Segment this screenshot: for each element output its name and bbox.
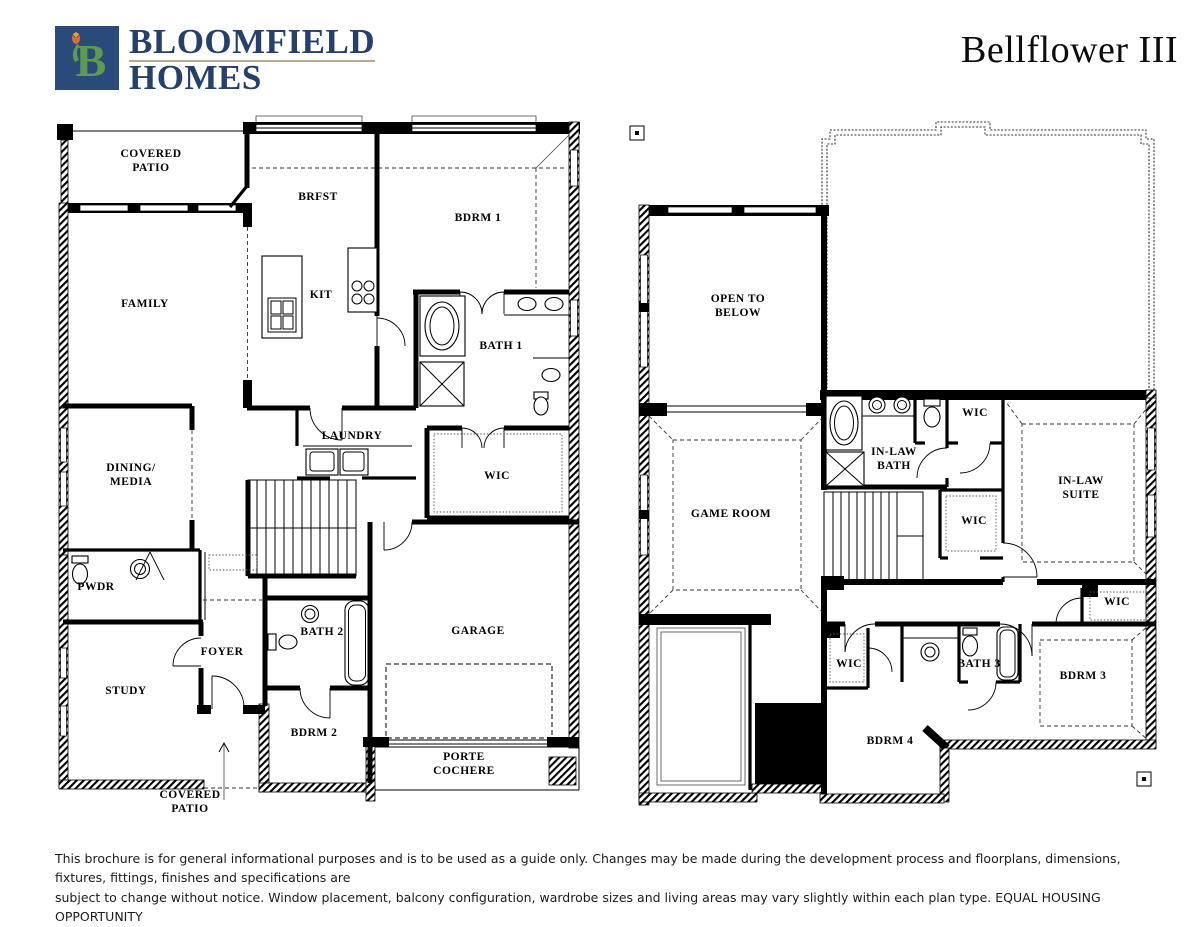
- plan-marker-icon: [630, 126, 644, 140]
- sink-icon: [302, 606, 319, 623]
- toilet-icon: [924, 399, 940, 427]
- brochure-page: B BLOOMFIELD HOMES Bellflower III: [0, 0, 1200, 927]
- stairs-second-floor: [824, 492, 923, 580]
- room-label-porte-cochere: PORTE COCHERE: [433, 751, 495, 779]
- room-label-kit: KIT: [310, 289, 333, 303]
- room-label-study: STUDY: [105, 685, 146, 699]
- room-label-bath2: BATH 2: [300, 626, 343, 640]
- room-label-inlaw-bath: IN-LAW BATH: [871, 446, 917, 474]
- plan-marker-icon: [1137, 772, 1151, 786]
- washer-dryer-icon: [303, 446, 412, 475]
- floorplan-drawing: [0, 0, 1200, 927]
- room-label-pwdr: PWDR: [77, 581, 114, 595]
- room-label-game-room: GAME ROOM: [691, 508, 771, 522]
- room-label-bdrm3: BDRM 3: [1060, 670, 1107, 684]
- disclaimer-line2: subject to change without notice. Window…: [55, 888, 1160, 927]
- room-label-bdrm1: BDRM 1: [455, 212, 502, 226]
- bathtub-icon: [345, 601, 369, 685]
- kitchen-island-icon: [262, 256, 302, 338]
- room-label-inlaw-suite: IN-LAW SUITE: [1058, 475, 1104, 503]
- room-label-bath1: BATH 1: [479, 340, 522, 354]
- disclaimer: This brochure is for general information…: [55, 849, 1160, 927]
- sink-icon: [131, 560, 150, 579]
- room-label-laundry: LAUNDRY: [322, 430, 383, 444]
- bathtub-icon: [997, 627, 1018, 680]
- room-label-wic-4: WIC: [836, 658, 862, 672]
- disclaimer-line1: This brochure is for general information…: [55, 849, 1160, 888]
- room-label-wic-3: WIC: [1104, 596, 1130, 610]
- bathtub-icon: [420, 296, 465, 356]
- toilet-icon: [534, 392, 548, 415]
- room-label-dining-media: DINING/ MEDIA: [106, 462, 156, 490]
- toilet-icon: [72, 556, 88, 584]
- room-label-wic-2: WIC: [961, 515, 987, 529]
- bathtub-icon: [826, 396, 862, 450]
- room-label-bdrm2: BDRM 2: [291, 727, 338, 741]
- room-label-bdrm4: BDRM 4: [867, 735, 914, 749]
- room-label-family: FAMILY: [121, 298, 169, 312]
- shower-icon: [420, 362, 464, 406]
- room-label-covered-patio-rear: COVERED PATIO: [159, 789, 220, 817]
- room-label-covered-patio: COVERED PATIO: [120, 148, 181, 176]
- room-label-foyer: FOYER: [201, 646, 244, 660]
- sink-icon: [533, 358, 569, 382]
- room-label-brfst: BRFST: [298, 191, 338, 205]
- room-label-bath3: BATH 3: [957, 658, 1000, 672]
- room-label-garage: GARAGE: [451, 625, 504, 639]
- room-label-wic: WIC: [484, 470, 510, 484]
- stairs-first-floor: [248, 480, 356, 576]
- cooktop-icon: [348, 248, 377, 312]
- room-label-open-to-below: OPEN TO BELOW: [711, 293, 766, 321]
- room-label-wic-1: WIC: [962, 407, 988, 421]
- toilet-icon: [963, 628, 978, 656]
- toilet-icon: [268, 634, 297, 650]
- shower-icon: [826, 452, 864, 486]
- sink-icon: [902, 638, 959, 661]
- double-sink-icon: [504, 298, 569, 316]
